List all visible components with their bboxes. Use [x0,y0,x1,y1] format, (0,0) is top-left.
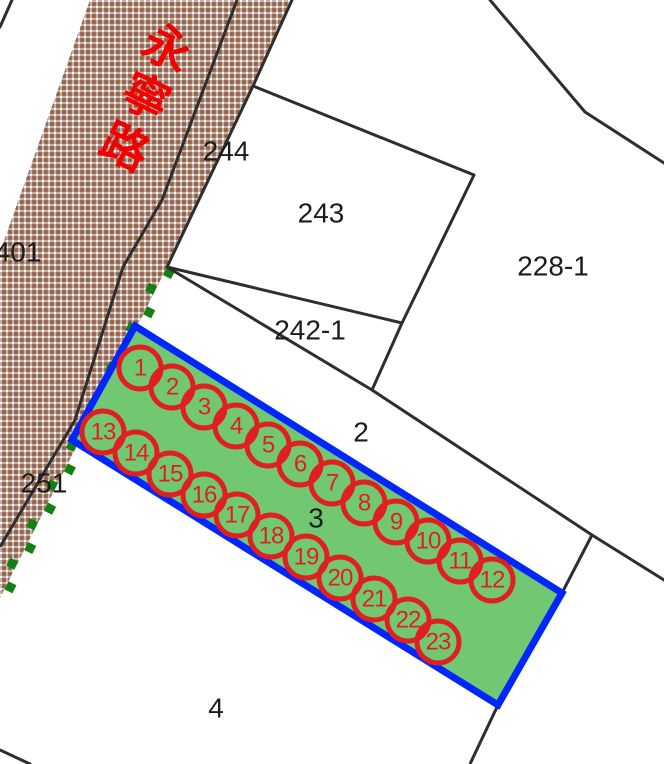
lot-marker-number: 7 [326,470,339,497]
lot-marker-number: 1 [134,355,147,382]
lot-marker-number: 4 [230,413,243,440]
lot-marker-number: 2 [166,374,179,401]
lot-marker-number: 13 [91,419,116,446]
lot-marker-number: 22 [396,607,421,634]
lot-marker-number: 16 [192,482,217,509]
lot-marker-number: 19 [294,544,319,571]
parcel-label-401: 401 [0,237,41,268]
map-canvas[interactable]: 1234567891011121314151617181920212223 40… [0,0,664,764]
lot-marker-number: 10 [416,528,441,555]
lot-marker-number: 9 [390,509,403,536]
lot-marker-number: 14 [124,440,149,467]
parcel-label-228-1: 228-1 [517,251,589,282]
lot-marker-number: 5 [262,432,275,459]
lot-marker-number: 20 [328,565,353,592]
lot-marker-number: 23 [426,629,451,656]
parcel-label-2: 2 [353,417,369,448]
parcel-label-244: 244 [203,136,250,167]
lot-marker-number: 21 [362,586,387,613]
lot-marker-number: 15 [158,461,183,488]
lot-marker-number: 6 [294,451,307,478]
parcel-label-251: 251 [21,468,68,499]
parcel-label-242-1: 242-1 [274,315,346,346]
lot-marker-number: 8 [358,490,371,517]
lot-marker-number: 18 [259,523,284,550]
lot-marker-number: 3 [198,394,211,421]
parcel-label-3: 3 [308,503,324,534]
lot-marker-number: 17 [225,502,250,529]
lot-marker-number: 11 [449,548,473,575]
parcel-label-4: 4 [208,693,224,724]
lot-marker-number: 12 [480,567,505,594]
cadastral-map-svg[interactable]: 1234567891011121314151617181920212223 40… [0,0,664,764]
parcel-label-243: 243 [298,198,345,229]
